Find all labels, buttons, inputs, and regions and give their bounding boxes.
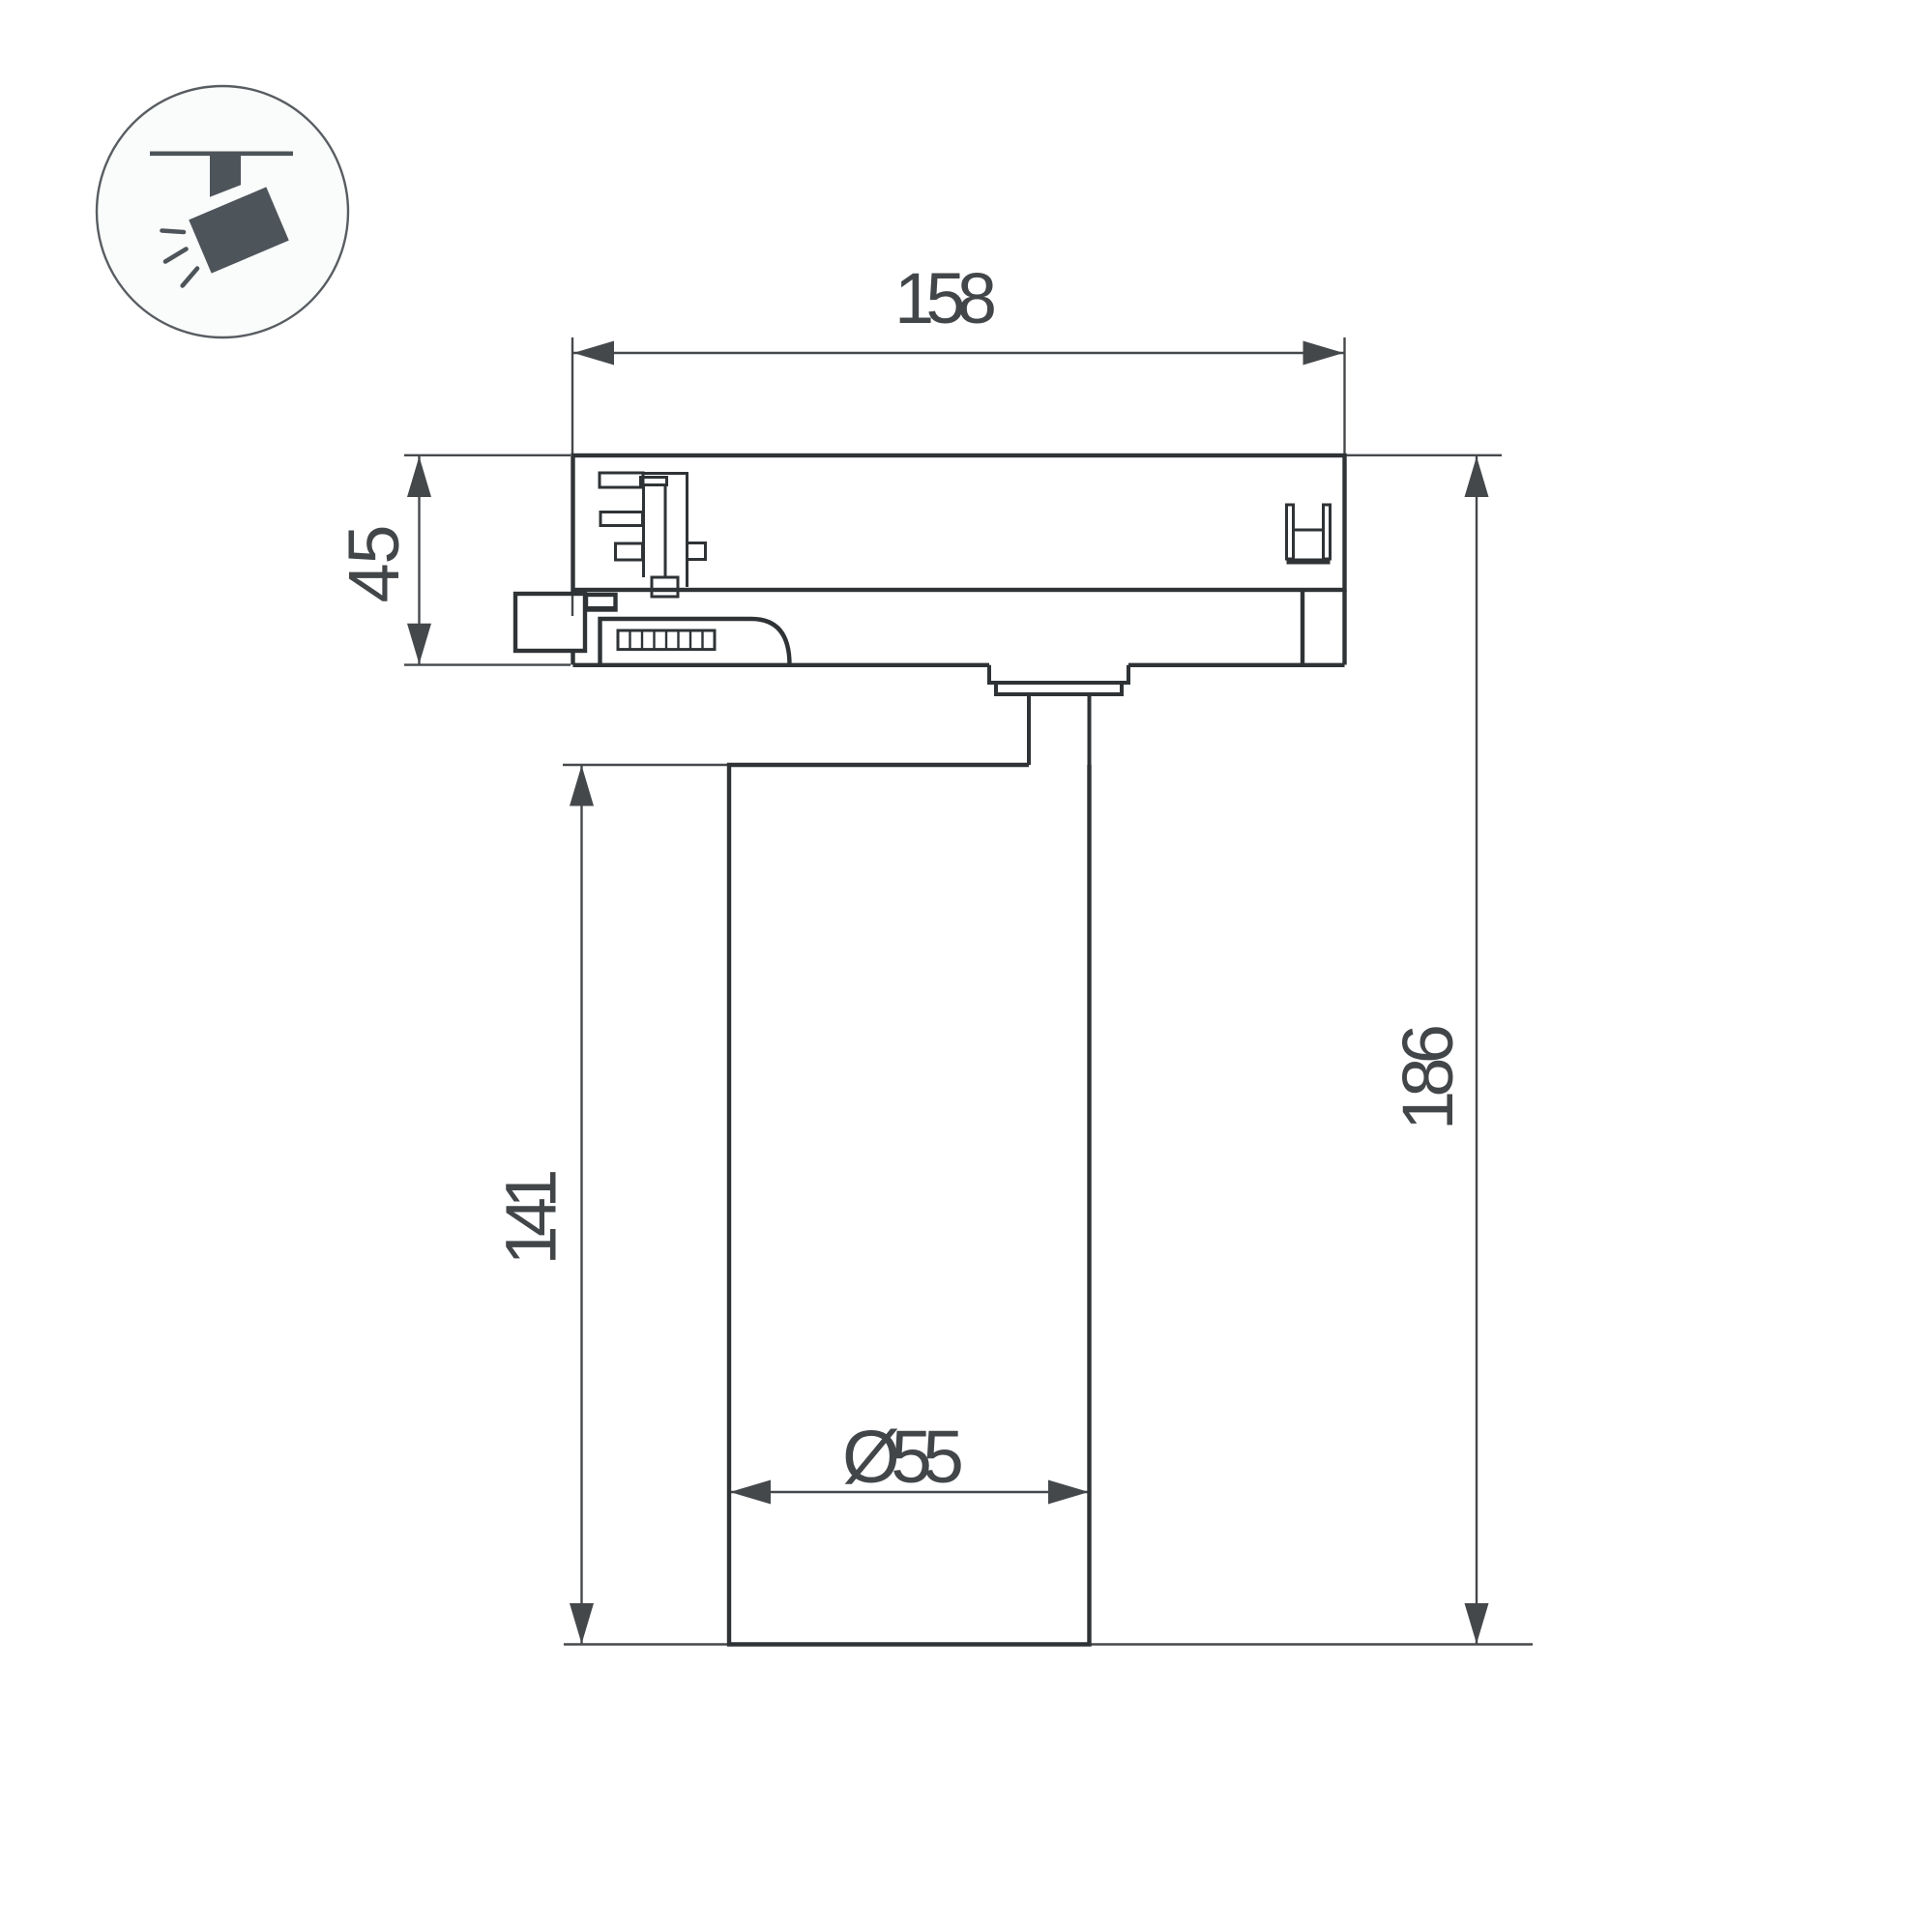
svg-text:141: 141 [491,1169,571,1266]
svg-text:Ø55: Ø55 [842,1416,964,1499]
svg-text:158: 158 [894,258,997,338]
svg-text:45: 45 [334,525,414,603]
svg-text:186: 186 [1388,1024,1468,1130]
